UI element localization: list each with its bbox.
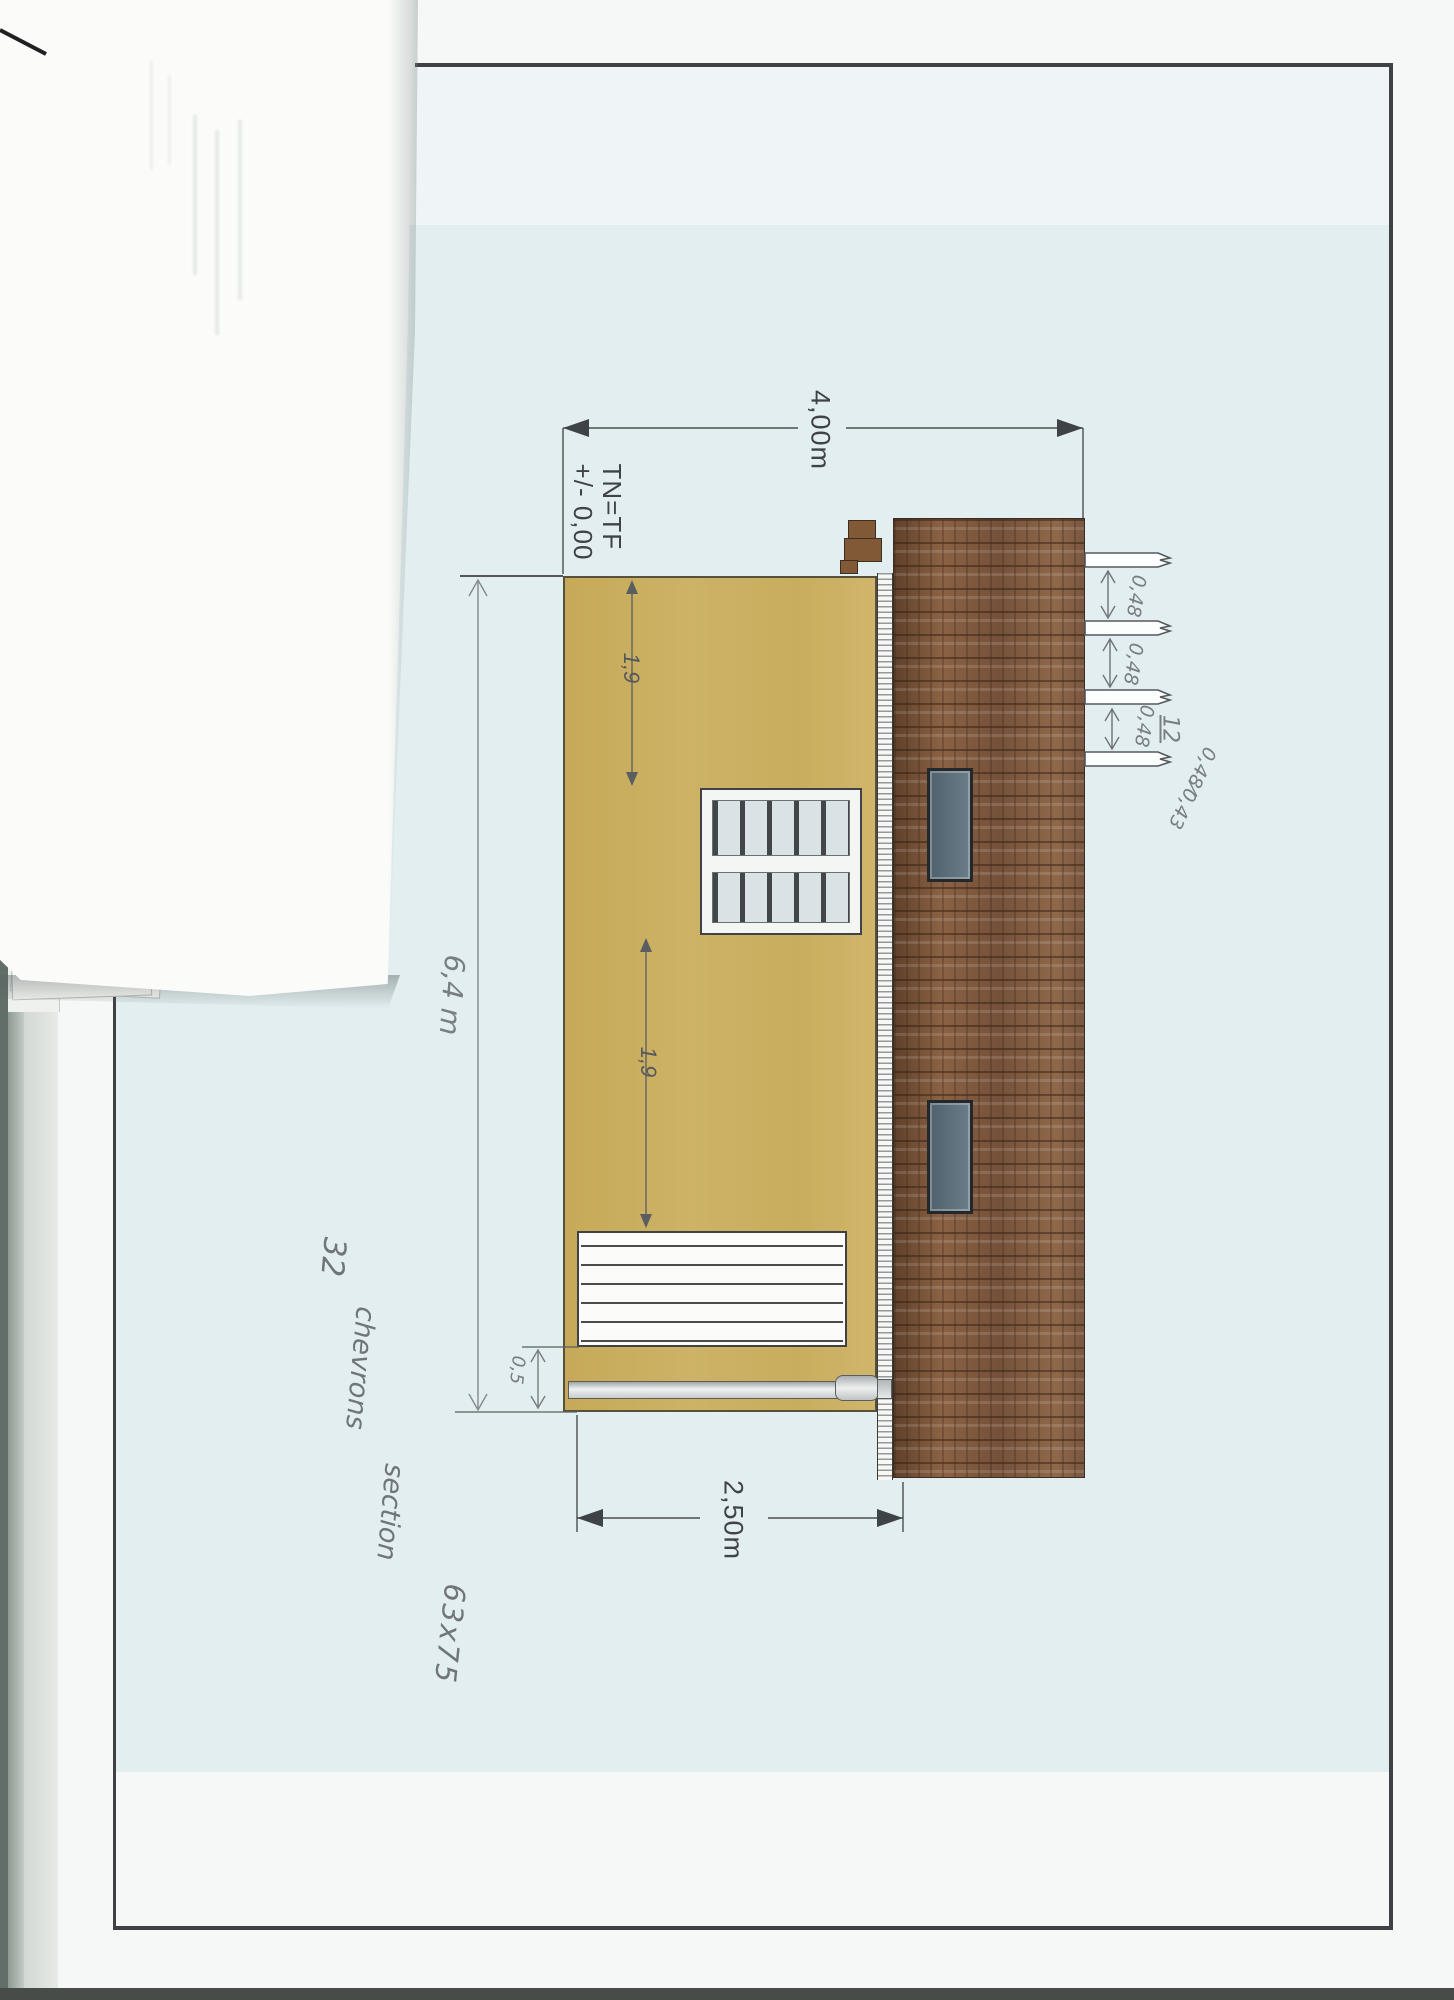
dim-ridge-height: 4,00m: [805, 390, 836, 470]
scanner-edge-band: [0, 1988, 1454, 2000]
overlapping-paper: [0, 0, 416, 1002]
bleed-through-text: [215, 130, 219, 335]
corner-diagonal-mark: [0, 0, 60, 70]
bleed-through-text: [168, 75, 171, 165]
dim-building-length: 6,4 m: [433, 954, 472, 1037]
ground-level-line1: TN=TF: [597, 464, 626, 561]
bleed-through-text: [238, 120, 242, 300]
dim-window-lower: 1,9: [635, 1047, 661, 1078]
dim-eave-height: 2,50m: [718, 1480, 749, 1560]
ground-level-line2: +/- 0,00: [568, 464, 597, 561]
bleed-through-text: [193, 115, 197, 275]
bleed-through-text: [150, 60, 153, 170]
scanned-architectural-plan: { "document": { "kind": "scanned archite…: [0, 0, 1454, 2000]
dim-window-upper: 1,9: [618, 653, 644, 684]
ground-level-label: TN=TF +/- 0,00: [568, 464, 626, 561]
dim-door-offset: 0,5: [505, 1355, 529, 1386]
rafter-count: 12: [1158, 715, 1183, 743]
note-rafter-count: 32: [313, 1236, 352, 1278]
